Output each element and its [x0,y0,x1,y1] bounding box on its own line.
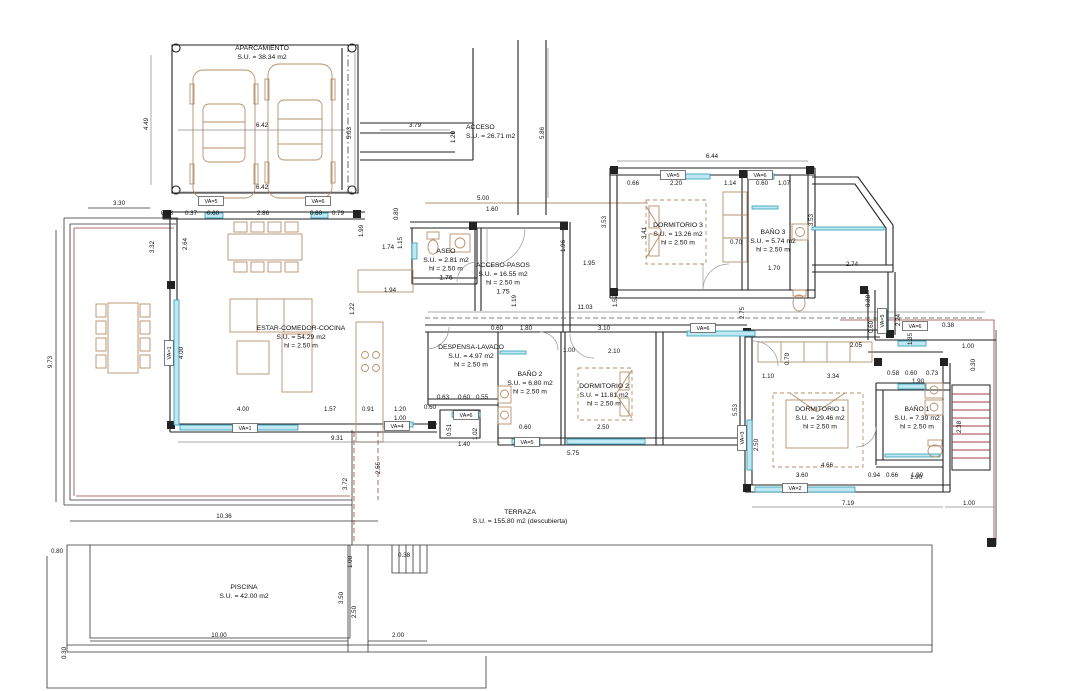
room-label-despensa-lavado: DESPENSA-LAVADOS.U. = 4.97 m2hl = 2.50 m [438,344,504,369]
wall-columns [163,166,996,547]
dimension-text: 0.55 [476,394,489,401]
dimension-text: 1.00 [347,555,354,568]
dining-table [228,222,302,272]
window-tag: VA=6 [691,324,716,333]
dimension-text: 10.36 [216,513,232,520]
dimension-text: 0.60 [207,210,220,217]
dimension-text: 0.60 [905,370,918,377]
dimension-text: 3.10 [598,325,611,332]
dimension-text: 0.73 [926,370,939,377]
dimension-text: 5.86 [539,126,546,139]
dimension-text: 0.60 [424,404,437,411]
dimension-text: 1.60 [486,206,499,213]
dimension-text: 1.74 [382,244,395,251]
dimension-text: 1.90 [912,378,925,385]
dimension-text: 1.57 [324,406,337,413]
svg-text:VA=3: VA=3 [740,432,746,445]
window-tag: VA=5 [515,438,540,447]
bed-dorm1 [758,342,872,467]
room-label-bano2: BAÑO 2S.U. = 6.80 m2hl = 2.50 m [507,369,553,396]
dimension-text: 0.60 [491,325,504,332]
dimension-text: 4.49 [143,117,150,130]
dimension-text: 2.86 [257,210,270,217]
dimension-text: 1.20 [394,406,407,413]
window-tag: VA=6 [748,171,773,180]
dimension-text: 2.55 [375,461,382,474]
dimension-text: 0.58 [887,370,900,377]
svg-text:VA=1: VA=1 [167,347,173,360]
room-label-terraza: TERRAZAS.U. = 155.80 m2 (descubierta) [473,509,568,525]
dimension-text: 0.60 [519,424,532,431]
dimension-text: 1.07 [778,180,791,187]
room-label-estar-comedor-cocina: ESTAR-COMEDOR-COCINAS.U. = 54.29 m2hl = … [257,325,346,350]
dimension-text: 0.80 [393,207,400,220]
dimension-text: 2.50 [753,438,760,451]
window-tag: VA=4 [385,422,410,431]
dimension-text: 4.00 [237,406,250,413]
room-label-dormitorio3: DORMITORIO 3S.U. = 13.26 m2hl = 2.50 m [653,222,703,247]
dimension-text: 0.88 [865,294,872,307]
dimension-text: 1.20 [450,130,457,143]
dimension-text: 9.73 [47,355,54,368]
outdoor-table [96,303,150,373]
dimension-text: 0.70 [730,239,743,246]
dimension-text: 2.10 [608,348,621,355]
dimension-text: 4.00 [178,346,185,359]
svg-text:VA=2: VA=2 [789,486,802,492]
dimension-text: 1.40 [458,441,471,448]
access-walkway [360,40,546,215]
pool-deck [67,545,932,652]
dimension-text: 1.52 [612,294,619,307]
window-tag: VA=2 [783,484,808,493]
car-icon [265,64,335,198]
dimension-text: 2.05 [850,342,863,349]
svg-text:VA=6: VA=6 [460,413,473,419]
dimension-text: 6.42 [256,122,269,129]
svg-text:VA=6: VA=6 [754,173,767,179]
svg-text:VA=5: VA=5 [667,173,680,179]
dimension-text: 3.53 [601,215,608,228]
dimension-text: 3.50 [338,591,345,604]
dimension-text: 3.34 [827,373,840,380]
dimension-text: 1.70 [768,265,781,272]
svg-text:VA=6: VA=6 [312,199,325,205]
window-tag: VA=6 [454,411,479,420]
dimension-text: 2.50 [597,424,610,431]
dimension-text: 0.80 [51,548,64,555]
dimension-text: 0.63 [437,394,450,401]
dimension-text: 5.00 [477,195,490,202]
dimension-text: 0.91 [362,406,375,413]
dimension-text: 0.66 [627,180,640,187]
dimension-text: 1.15 [397,236,404,249]
dimension-text: 0.37 [185,210,198,217]
dimension-text: 1.10 [762,373,775,380]
dimension-text: 0.94 [868,472,881,479]
svg-text:VA=6: VA=6 [909,324,922,330]
dimension-text: 1.35 [907,332,914,345]
room-label-dormitorio2: DORMITORIO 2S.U. = 11.81 m2hl = 2.50 m [579,383,629,408]
dimension-text: 2.64 [182,237,189,250]
dimension-text: 0.30 [61,646,68,659]
dimension-text: 3.41 [641,226,648,239]
dimension-text: 1.94 [384,287,397,294]
window-tag: VA=5 [661,171,686,180]
dimension-text: 1.22 [349,302,356,315]
dimension-text: 10.00 [211,632,227,639]
dimension-text: 3.32 [149,240,156,253]
dimension-text: 3.30 [113,200,126,207]
dimension-text: 1.14 [724,180,737,187]
window-tag: VA=5 [878,309,887,334]
floor-plan-canvas: VA=5VA=6VA=1VA=1VA=4VA=6VA=5VA=5VA=6VA=6… [0,0,1080,691]
dimension-text: 2.74 [846,261,859,268]
dimension-text: 2.75 [739,306,746,319]
dimension-text: 3.53 [808,213,815,226]
dimension-text: 5.53 [732,403,739,416]
window-tag: VA=6 [306,197,331,206]
dimension-text: 0.38 [398,552,411,559]
svg-text:VA=4: VA=4 [391,424,404,430]
dimension-text: 0.38 [942,322,955,329]
dimension-text: 2.38 [956,420,963,433]
dimension-text: 4.66 [821,462,834,469]
dimension-text: 1.99 [358,224,365,237]
dimension-text: 0.60 [310,210,323,217]
room-label-piscina: PISCINAS.U. = 42.00 m2 [219,584,269,600]
dimension-text: 1.00 [563,347,576,354]
dimension-text: 0.38 [161,210,174,217]
room-label-layer: APARCAMIENTOS.U. = 38.34 m2ACCESOS.U. = … [219,45,940,600]
dimension-text: 6.44 [706,153,719,160]
dimension-text: 3.60 [796,472,809,479]
bath-fixtures [427,224,943,457]
window-tag: VA=5 [199,197,224,206]
dimension-text: 0.60 [756,180,769,187]
window-tag: VA=3 [738,426,747,451]
dimension-text: 1.80 [520,325,533,332]
window-tag: VA=1 [165,341,174,366]
dimension-text: 1.00 [963,500,976,507]
room-label-dormitorio1: DORMITORIO 1S.U. = 29.46 m2hl = 2.50 m [795,406,845,431]
dimension-text: 0.30 [970,358,977,371]
window-tag: VA=6 [903,322,928,331]
room-label-bano3: BAÑO 3S.U. = 5.74 m2hl = 2.50 m [750,227,796,254]
dimension-text: 0.60 [458,394,471,401]
dimension-text: 3.72 [342,477,349,490]
dimension-text-layer: 4.496.426.425.033.791.205.863.305.001.60… [47,117,977,659]
dimension-text: 0.66 [886,472,899,479]
room-label-acceso: ACCESOS.U. = 26.71 m2 [466,124,516,140]
dimension-text: 1.95 [583,260,596,267]
room-label-aparcamiento: APARCAMIENTOS.U. = 38.34 m2 [235,45,289,61]
svg-text:VA=5: VA=5 [205,199,218,205]
dimension-text: 2.00 [392,632,405,639]
dimension-text: 5.75 [567,450,580,457]
dimension-text: 7.19 [842,500,855,507]
dimension-text: 1.90 [910,474,923,481]
dimension-text: 1.02 [472,427,479,440]
svg-text:VA=5: VA=5 [880,315,886,328]
dimension-text: 0.60 [868,320,875,333]
window-tag: VA=1 [233,424,258,433]
svg-text:VA=5: VA=5 [521,440,534,446]
dimension-text: 1.00 [962,343,975,350]
dimension-text: 1.00 [394,415,407,422]
svg-text:VA=1: VA=1 [239,426,252,432]
dimension-text: 9.31 [331,435,344,442]
dimension-text: 0.51 [446,423,453,436]
dimension-text: 1.19 [511,294,518,307]
dimension-text: 6.42 [256,184,269,191]
room-label-acceso-pasos: ACCESO-PASOSS.U. = 16.55 m2hl = 2.50 m1.… [476,262,530,295]
dimension-text: 3.79 [409,122,422,129]
dimension-text: 0.79 [332,210,345,217]
dimension-text: 2.20 [670,180,683,187]
svg-text:VA=6: VA=6 [697,326,710,332]
dimension-text: 5.03 [346,126,353,139]
dimension-text: 0.70 [784,352,791,365]
dimension-text: 11.03 [577,304,593,311]
dimension-text: 1.96 [560,239,567,252]
dimension-text: 2.50 [351,605,358,618]
car-icon [190,70,258,198]
dimension-text: 2.24 [895,313,902,326]
room-label-bano1: BAÑO 1S.U. = 7.39 m2hl = 2.50 m [894,404,940,431]
site-boundary [47,556,486,688]
